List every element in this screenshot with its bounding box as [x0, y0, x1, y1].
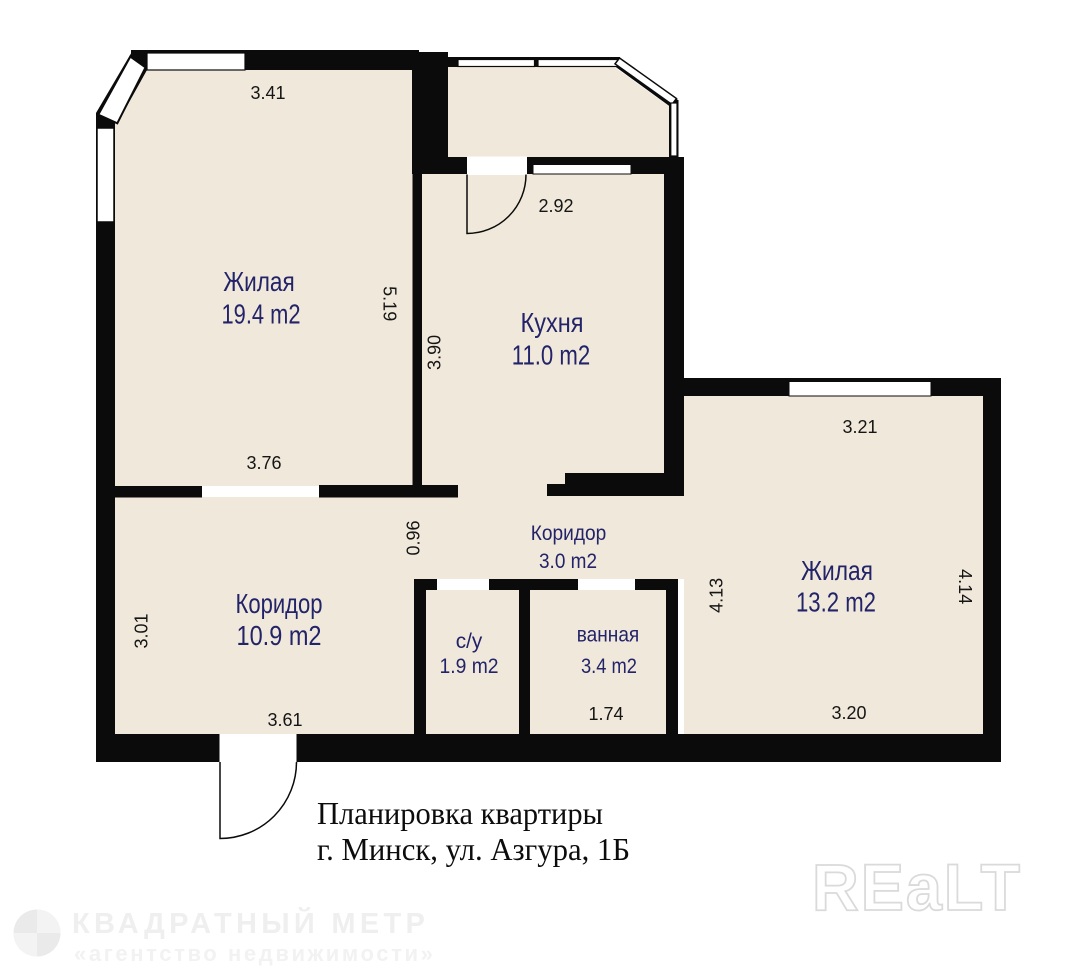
svg-text:REaLT: REaLT: [812, 850, 1022, 924]
svg-text:Жилая: Жилая: [801, 555, 873, 586]
svg-text:3.61: 3.61: [267, 710, 302, 730]
svg-text:3.41: 3.41: [250, 83, 285, 103]
svg-text:3.0 m2: 3.0 m2: [539, 550, 597, 573]
svg-text:3.21: 3.21: [842, 417, 877, 437]
svg-text:КВАДРАТНЫЙ МЕТР: КВАДРАТНЫЙ МЕТР: [72, 906, 429, 940]
svg-text:3.4 m2: 3.4 m2: [581, 655, 637, 678]
svg-text:3.76: 3.76: [246, 453, 281, 473]
svg-text:0.96: 0.96: [403, 520, 423, 555]
svg-text:г. Минск, ул. Азгура, 1Б: г. Минск, ул. Азгура, 1Б: [317, 831, 630, 867]
svg-text:ванная: ванная: [577, 624, 640, 647]
svg-text:3.01: 3.01: [132, 613, 152, 648]
svg-text:2.92: 2.92: [538, 196, 573, 216]
svg-text:5.19: 5.19: [380, 286, 400, 321]
svg-text:4.14: 4.14: [955, 569, 975, 604]
svg-text:3.90: 3.90: [425, 335, 445, 370]
svg-text:4.13: 4.13: [707, 578, 727, 613]
svg-text:19.4 m2: 19.4 m2: [222, 299, 301, 330]
svg-text:10.9 m2: 10.9 m2: [237, 620, 322, 651]
svg-text:3.20: 3.20: [831, 703, 866, 723]
svg-text:11.0 m2: 11.0 m2: [512, 340, 591, 371]
svg-text:13.2 m2: 13.2 m2: [796, 587, 876, 618]
svg-text:Кухня: Кухня: [521, 307, 584, 338]
svg-text:с/у: с/у: [456, 630, 483, 653]
svg-text:Коридор: Коридор: [236, 588, 323, 619]
svg-text:1.74: 1.74: [588, 704, 623, 724]
svg-text:Жилая: Жилая: [223, 266, 295, 297]
svg-text:Планировка квартиры: Планировка квартиры: [317, 795, 603, 831]
svg-text:1.9 m2: 1.9 m2: [440, 655, 499, 678]
svg-text:Коридор: Коридор: [531, 522, 607, 545]
svg-text:«агентство недвижимости»: «агентство недвижимости»: [74, 941, 435, 966]
